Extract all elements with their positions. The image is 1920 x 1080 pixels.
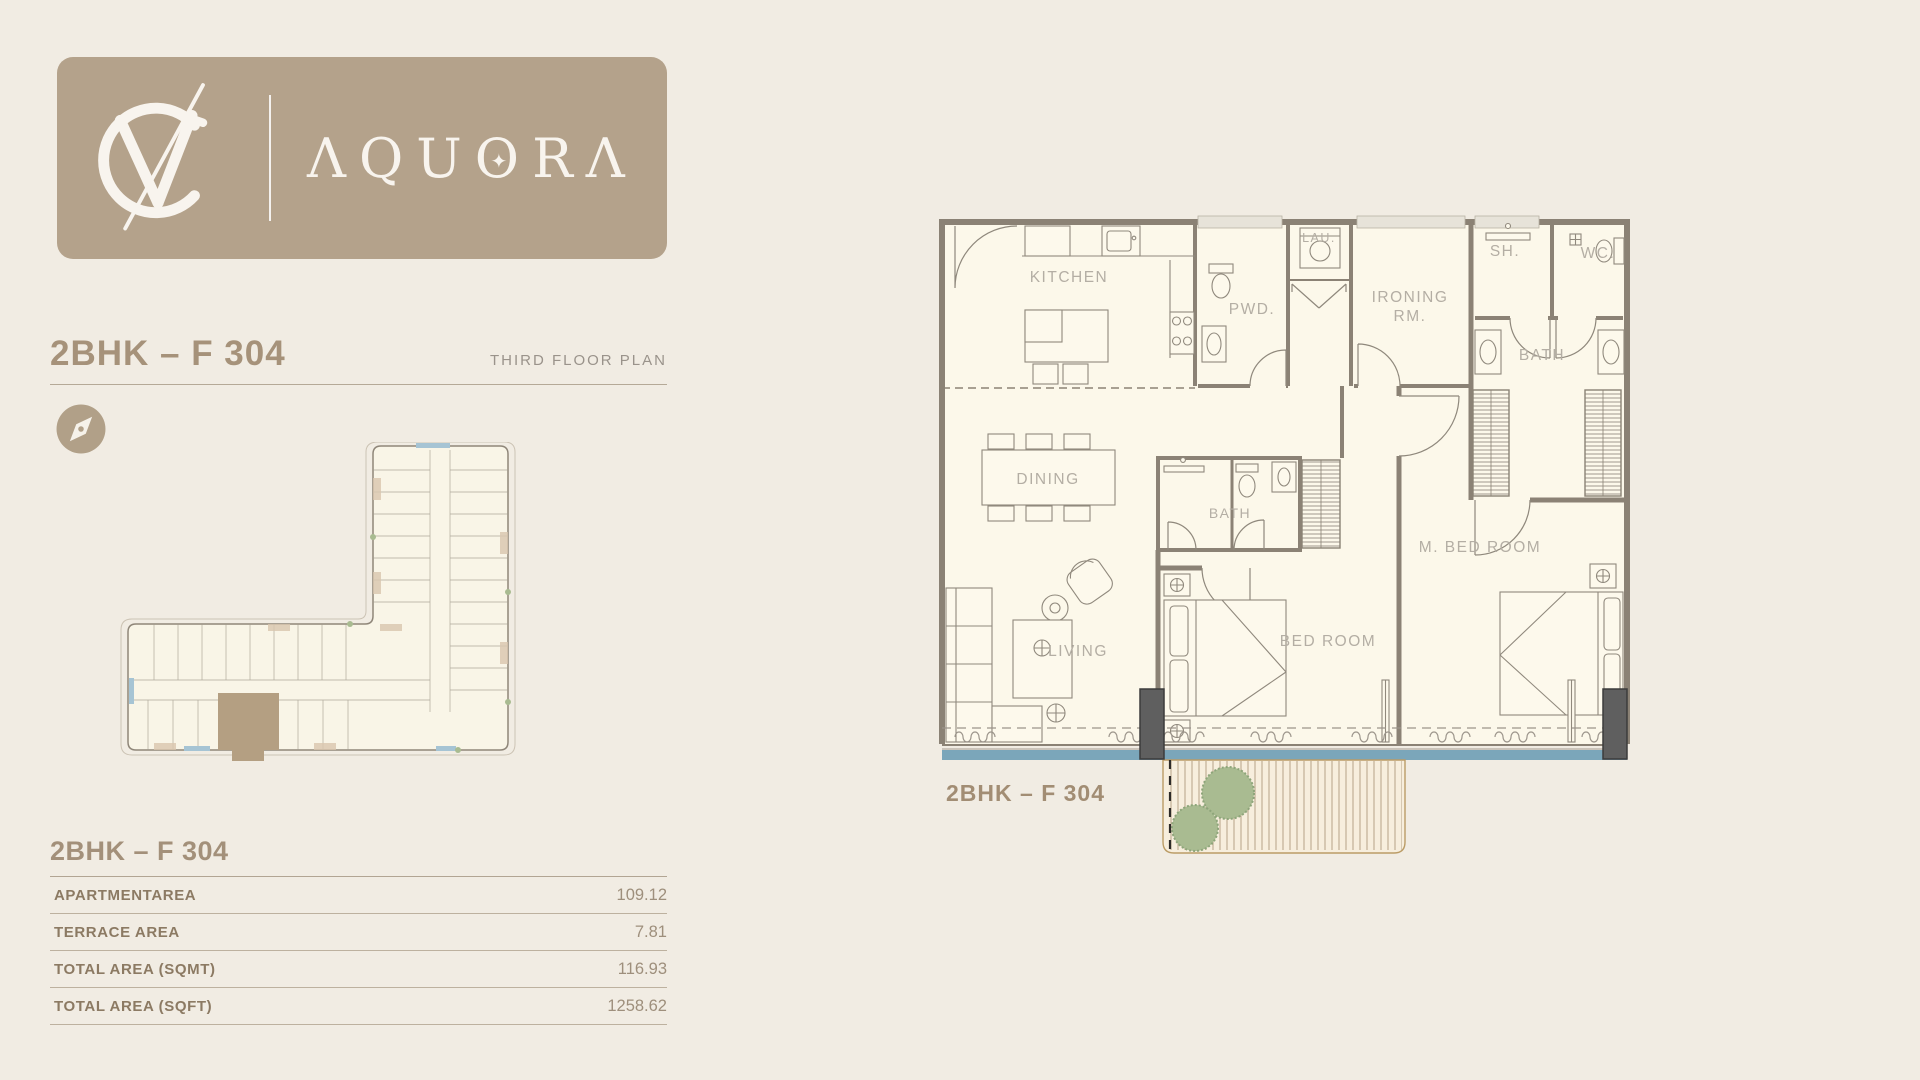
unit-label: 2BHK – F 304 [946,780,1105,806]
terrace-deck [1163,760,1405,853]
row-label: TOTAL AREA (SQMT) [54,961,216,978]
row-value: 7.81 [635,923,667,942]
room-label-pwd: PWD. [1229,301,1275,318]
table-row: TOTAL AREA (SQFT) 1258.62 [50,988,667,1025]
balcony-glass-band [942,750,1627,760]
row-value: 116.93 [618,960,667,979]
room-label-bath2: BATH [1209,505,1251,521]
room-label-master-bedroom: M. BED ROOM [1419,539,1541,556]
room-label-wc: WC. [1581,245,1616,262]
table-row: TOTAL AREA (SQMT) 116.93 [50,951,667,988]
row-value: 1258.62 [607,997,667,1016]
area-table: 2BHK – F 304 APARTMENTAREA 109.12 TERRAC… [50,836,667,1025]
page-subtitle: THIRD FLOOR PLAN [490,352,667,369]
row-label: TOTAL AREA (SQFT) [54,998,212,1015]
brand-card: ΛQUO✦RΛ [57,57,667,259]
room-label-living: LIVING [1048,643,1108,660]
unit-floor-plan: KITCHEN PWD. LAU. IRONING RM. SH. WC. BA… [930,200,1650,880]
room-label-dining: DINING [1016,471,1079,488]
brand-o: O✦ [475,127,532,190]
table-row: TERRACE AREA 7.81 [50,914,667,951]
room-label-ironing-rm: RM. [1394,308,1427,325]
page-title: 2BHK – F 304 [50,334,286,374]
logo-divider [269,95,271,221]
brand-name-pre: ΛQU [307,127,475,190]
compass-icon [56,404,106,454]
brand-name: ΛQUO✦RΛ [307,57,638,259]
room-label-master-bath: BATH [1519,347,1565,364]
table-row: APARTMENTAREA 109.12 [50,877,667,914]
room-label-ironing: IRONING [1372,289,1449,306]
star-icon: ✦ [490,149,507,173]
room-label-bedroom: BED ROOM [1280,633,1376,650]
brand-name-post: RΛ [532,127,638,190]
area-table-title: 2BHK – F 304 [50,836,667,877]
row-value: 109.12 [617,886,667,905]
plan-title-row: 2BHK – F 304 THIRD FLOOR PLAN [50,334,667,385]
row-label: TERRACE AREA [54,924,180,941]
room-label-laundry: LAU. [1302,231,1336,245]
vc-monogram-icon [83,79,233,237]
highlighted-unit [218,693,279,761]
room-label-kitchen: KITCHEN [1030,269,1109,286]
brochure-page: ΛQUO✦RΛ 2BHK – F 304 THIRD FLOOR PLAN [0,0,1920,1080]
window-inserts [1198,216,1539,228]
tree [1172,805,1218,851]
room-label-shower: SH. [1490,243,1520,260]
row-label: APARTMENTAREA [54,887,196,904]
building-key-plan [118,442,520,764]
